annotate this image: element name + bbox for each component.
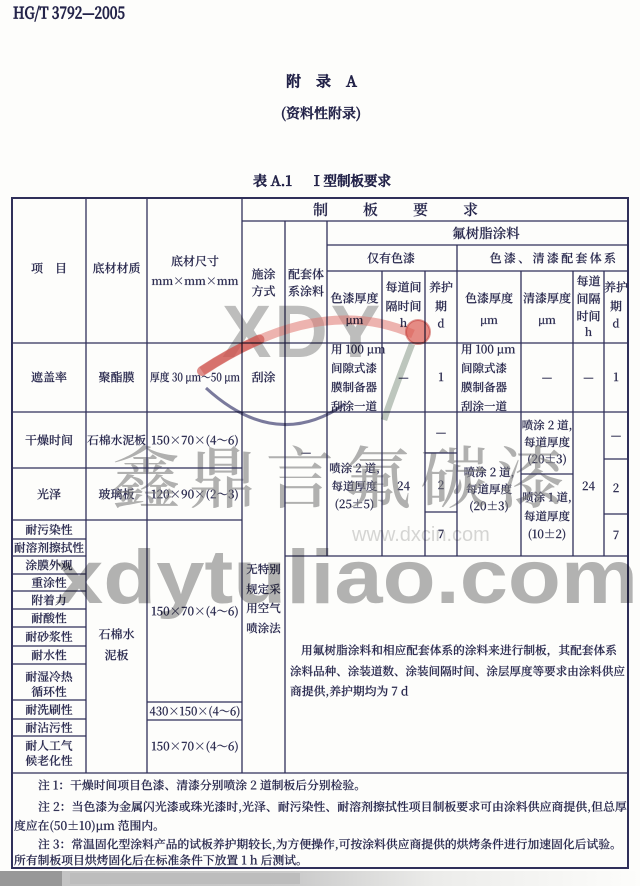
svg-text:XDY: XDY: [222, 290, 383, 373]
svg-text:xdytuliao.com: xdytuliao.com: [55, 535, 638, 620]
